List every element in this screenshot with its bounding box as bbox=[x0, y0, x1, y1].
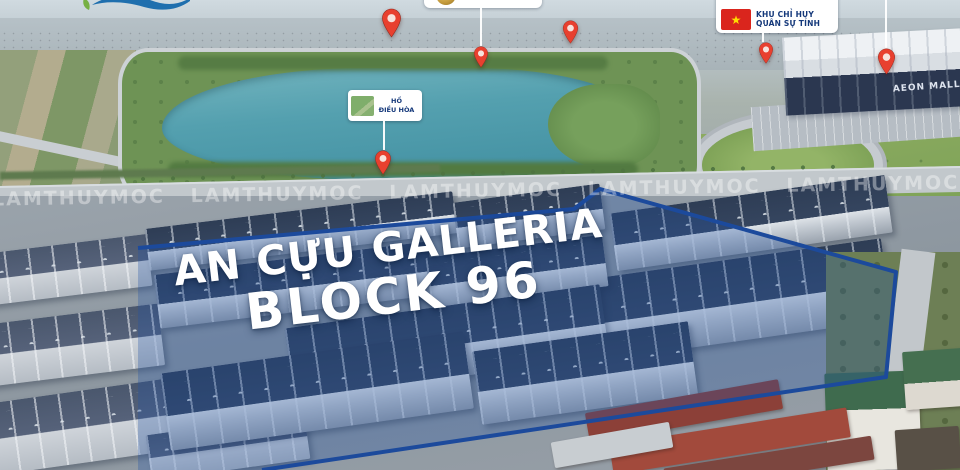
park-thumbnail bbox=[351, 96, 374, 116]
military-hq-line1: KHU CHỈ HUY bbox=[756, 10, 820, 20]
brand-logo bbox=[78, 0, 193, 14]
lake-label-line1: HỒ bbox=[374, 97, 419, 105]
aerial-photo-stage: AEON MALL LAMTHUYMOC LAMTHUYMOC LAMTHUYM… bbox=[0, 0, 960, 470]
lake-label: HỒ ĐIỀU HÒA bbox=[348, 90, 422, 121]
military-hq-label-text: KHU CHỈ HUY QUÂN SỰ TỈNH bbox=[756, 10, 820, 31]
wave-icon bbox=[92, 0, 190, 10]
lake-label-text: HỒ ĐIỀU HÒA bbox=[374, 97, 419, 113]
military-hq-label: ★ KHU CHỈ HUY QUÂN SỰ TỈNH bbox=[716, 0, 838, 33]
lake-label-line2: ĐIỀU HÒA bbox=[374, 106, 419, 114]
leaf-icon bbox=[83, 0, 89, 10]
military-hq-line2: QUÂN SỰ TỈNH bbox=[756, 19, 820, 29]
vietnam-flag-icon: ★ bbox=[721, 9, 751, 30]
star-icon: ★ bbox=[731, 14, 742, 26]
partial-top-label bbox=[424, 0, 542, 8]
gold-emblem-icon bbox=[436, 0, 456, 5]
